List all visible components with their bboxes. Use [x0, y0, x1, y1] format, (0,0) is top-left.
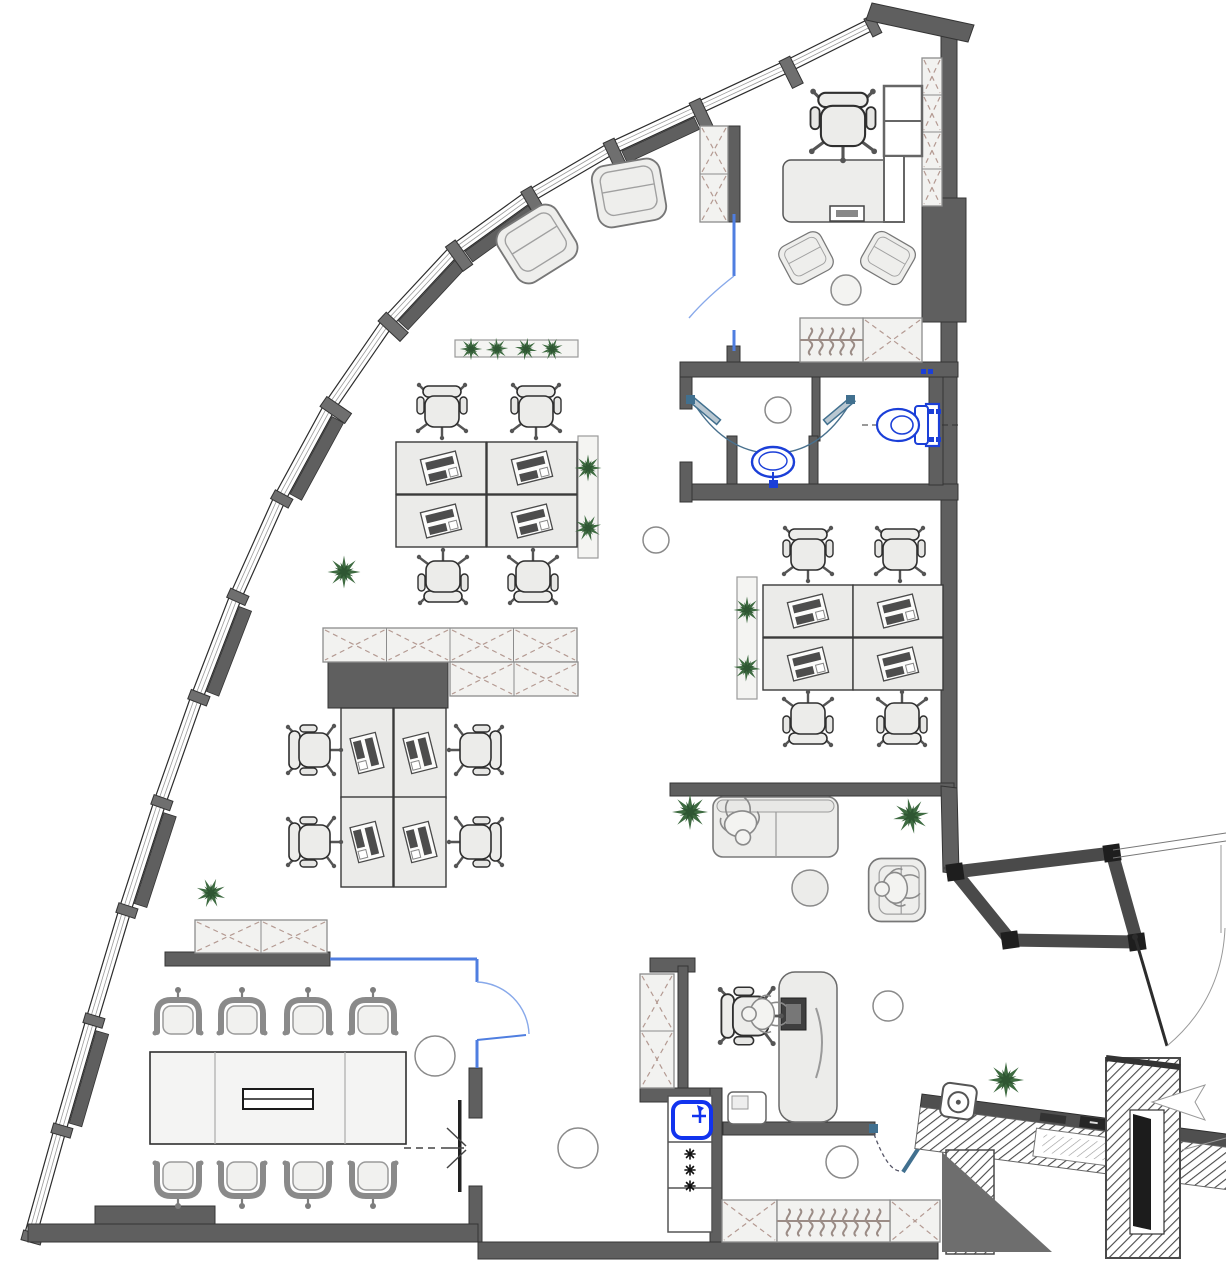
- storage-cabinet: [863, 318, 922, 362]
- entry-door-leaf: [1133, 1114, 1151, 1230]
- plant-icon: [460, 338, 483, 361]
- bottom-wall-block: [95, 1206, 215, 1224]
- bottom-wall-left: [28, 1224, 478, 1242]
- stove-burner-icon: [685, 1165, 695, 1175]
- floor-plan-drawing: [0, 0, 1226, 1280]
- kitchen-left-wall: [678, 966, 688, 1092]
- storage-cabinet: [195, 920, 327, 953]
- side-table: [831, 275, 861, 305]
- storage-cabinet: [450, 662, 578, 696]
- desk: [394, 708, 446, 798]
- plant-icon: [575, 455, 602, 482]
- vestibule-connector: [941, 786, 959, 874]
- coat-rack: [777, 1200, 890, 1242]
- desk: [341, 797, 393, 887]
- plant-icon: [988, 1062, 1024, 1098]
- bottom-wall-right: [478, 1242, 938, 1259]
- storage-cabinet: [700, 126, 728, 222]
- desk: [853, 585, 943, 637]
- bathroom-divider: [812, 377, 820, 441]
- manager-desk: [779, 972, 837, 1122]
- right-wall-top: [941, 28, 957, 200]
- bathroom-left-wall-b: [680, 462, 692, 502]
- coat-rack: [800, 318, 863, 362]
- meeting-right-wall-a: [469, 1068, 482, 1118]
- desk: [487, 495, 577, 547]
- desk: [763, 638, 853, 690]
- lounge-top-wall: [670, 783, 954, 796]
- bathroom-left-wall-a: [680, 377, 692, 409]
- stove-burner-icon: [685, 1181, 695, 1191]
- storage-cabinet: [722, 1200, 777, 1242]
- kitchenette: [668, 1096, 712, 1232]
- plant-icon: [328, 556, 361, 589]
- meeting-table: [150, 1052, 406, 1144]
- bathroom-top-wall: [680, 362, 958, 377]
- coffee-table: [792, 870, 828, 906]
- meeting-top-wall: [165, 952, 330, 966]
- storage-cabinet: [323, 628, 577, 662]
- desk: [394, 797, 446, 887]
- bathroom-bottom-wall: [692, 484, 958, 500]
- desk: [396, 442, 486, 494]
- storage-cabinet: [890, 1200, 940, 1242]
- desk: [396, 495, 486, 547]
- desk: [763, 585, 853, 637]
- plant-icon: [672, 794, 708, 830]
- desk: [487, 442, 577, 494]
- column-block: [922, 198, 966, 322]
- door-hinge: [846, 395, 855, 404]
- speaker-icon: [939, 1082, 977, 1120]
- sliding-door-panel: [458, 1100, 462, 1192]
- door-hinge: [686, 395, 695, 404]
- kitchen-sink-icon: [673, 1102, 711, 1138]
- planter-box: [737, 577, 757, 699]
- cluster-partition: [328, 662, 448, 708]
- plant-icon: [734, 597, 761, 624]
- planter-box: [578, 436, 598, 558]
- desk: [341, 708, 393, 798]
- office-entry-wall: [727, 126, 740, 222]
- stove-burner-icon: [685, 1149, 695, 1159]
- floor-plan-canvas: [0, 0, 1226, 1280]
- storage-cabinet: [640, 974, 674, 1088]
- desk-monitor-screen: [836, 210, 858, 217]
- desk: [853, 638, 943, 690]
- armchair: [590, 156, 669, 229]
- storage-cabinet: [922, 58, 942, 206]
